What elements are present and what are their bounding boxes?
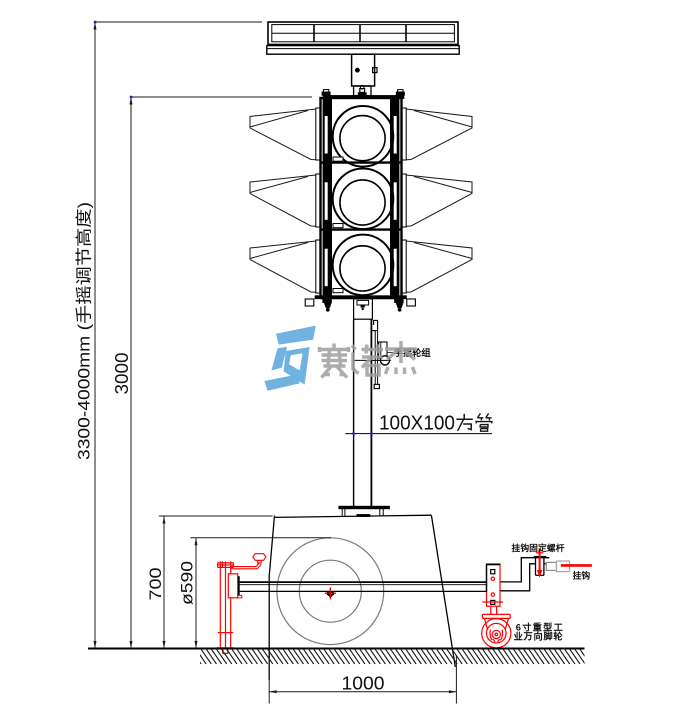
svg-text:ø590: ø590 xyxy=(178,561,197,605)
svg-text:业万向脚轮: 业万向脚轮 xyxy=(514,631,564,642)
svg-text:3000: 3000 xyxy=(112,353,132,395)
svg-text:挂钩固定螺杆: 挂钩固定螺杆 xyxy=(512,542,565,553)
svg-text:挂钩: 挂钩 xyxy=(573,569,591,580)
svg-text:700: 700 xyxy=(146,568,165,601)
svg-text:100X100: 100X100 xyxy=(379,412,455,435)
svg-text:1000: 1000 xyxy=(342,674,385,694)
svg-text:3300-4000mm (手摇调节高度): 3300-4000mm (手摇调节高度) xyxy=(75,202,94,460)
